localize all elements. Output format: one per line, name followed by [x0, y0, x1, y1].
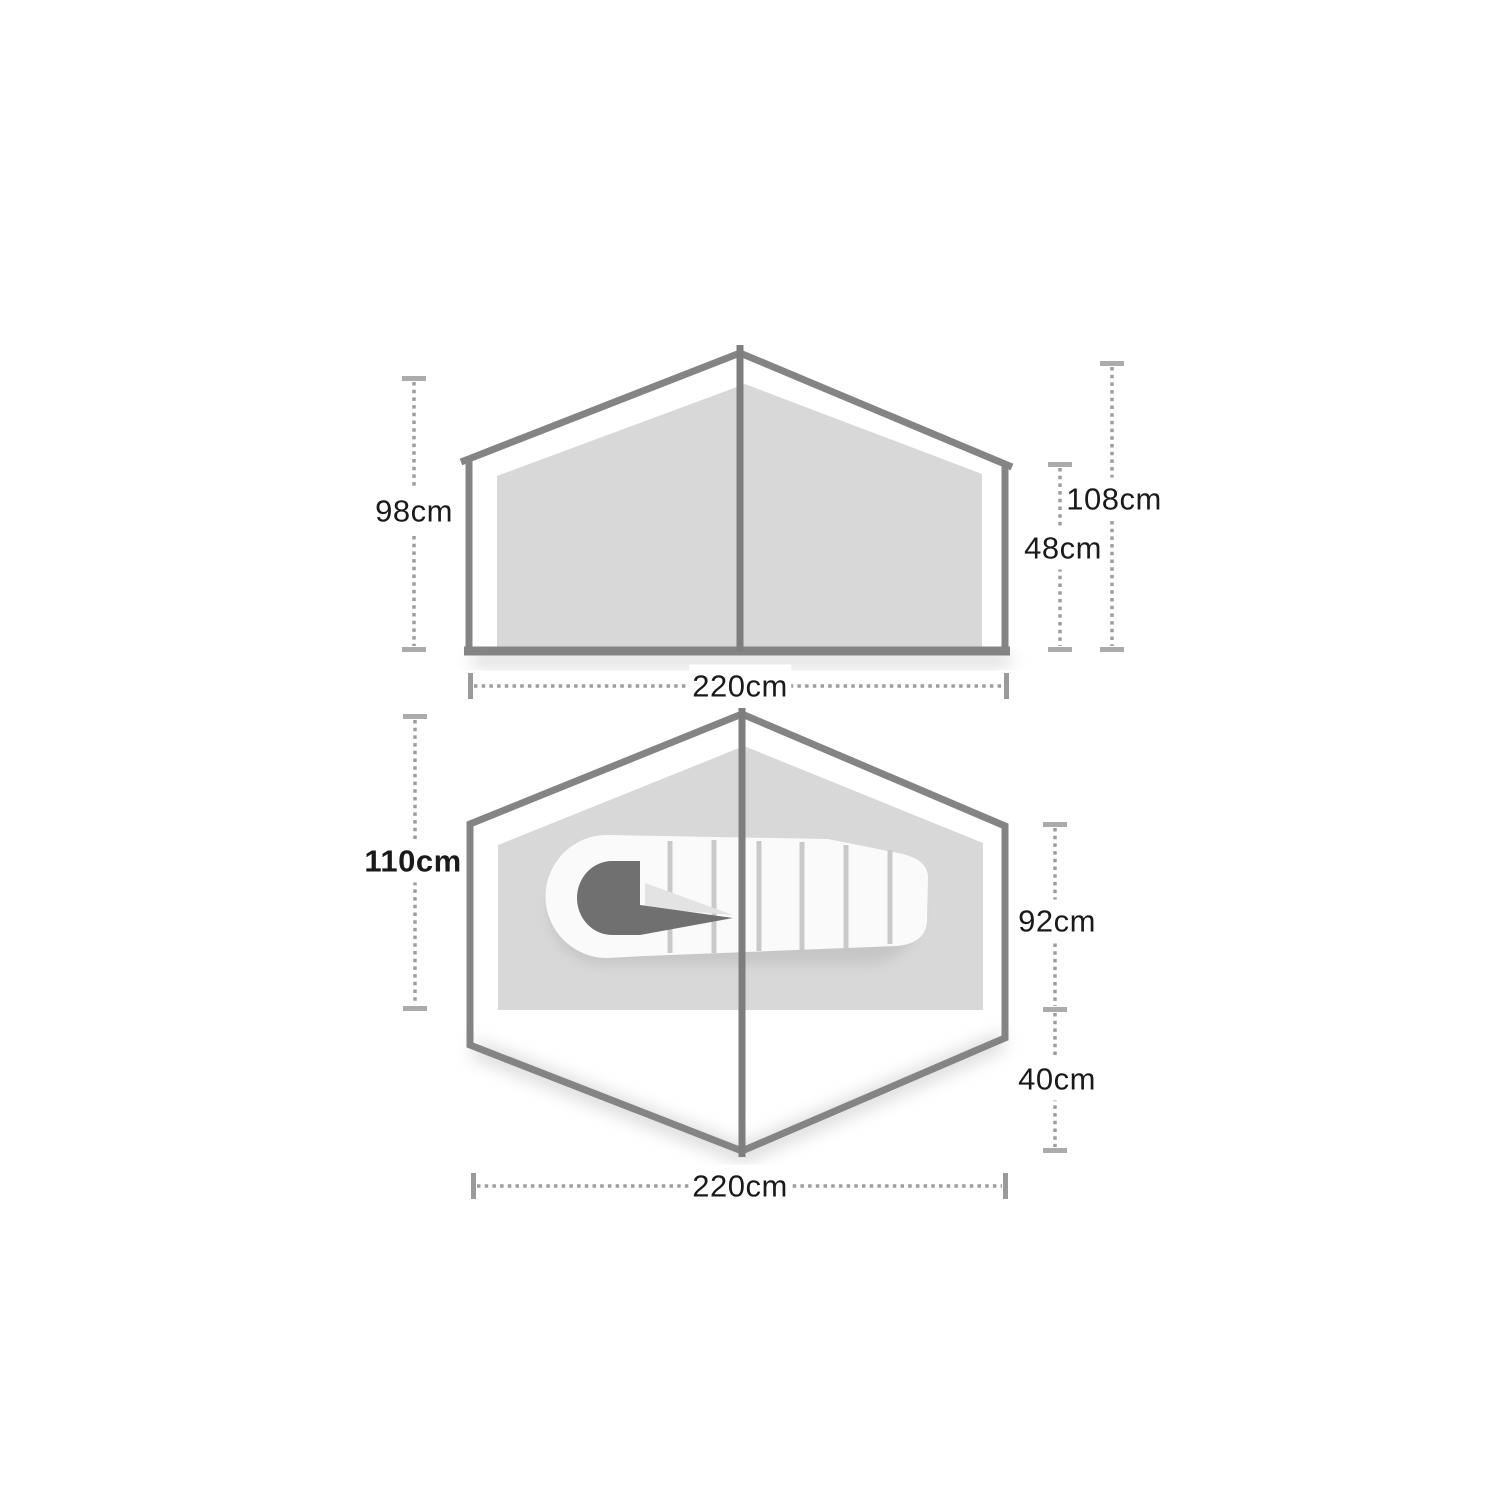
dim-cap [471, 1173, 476, 1199]
floor-plan-inner-depth-label: 92cm [1015, 900, 1099, 943]
side-view-left-height-label: 98cm [372, 490, 456, 533]
dim-cap [1048, 462, 1072, 467]
side-view-wall-height-label: 48cm [1021, 527, 1105, 570]
side-view-width-label: 220cm [689, 665, 791, 708]
dim-cap [1004, 673, 1009, 699]
dim-cap [403, 1006, 427, 1011]
floor-plan-width-label: 220cm [689, 1165, 791, 1208]
sleeping-bag [545, 835, 928, 964]
diagram-artwork [0, 0, 1500, 1500]
dim-cap [403, 714, 427, 719]
side-view [461, 345, 1012, 665]
dim-cap [1043, 1007, 1067, 1012]
floor-plan [470, 708, 1005, 1157]
floor-plan-porch-depth-label: 40cm [1015, 1058, 1099, 1101]
dim-cap [1100, 361, 1124, 366]
dim-cap [468, 673, 473, 699]
dim-cap [402, 647, 426, 652]
floor-plan-left-depth-label: 110cm [361, 840, 464, 883]
dim-cap [1003, 1173, 1008, 1199]
side-view-peak-height-label: 108cm [1063, 478, 1165, 521]
tent-dimensions-diagram: 98cm 108cm 48cm 220cm 110cm 92cm 40cm 22… [0, 0, 1500, 1500]
dim-cap [1043, 1148, 1067, 1153]
dim-cap [1043, 822, 1067, 827]
dim-cap [402, 376, 426, 381]
dim-cap [1100, 647, 1124, 652]
side-view-ground-shadow [472, 654, 1010, 665]
dim-cap [1048, 647, 1072, 652]
